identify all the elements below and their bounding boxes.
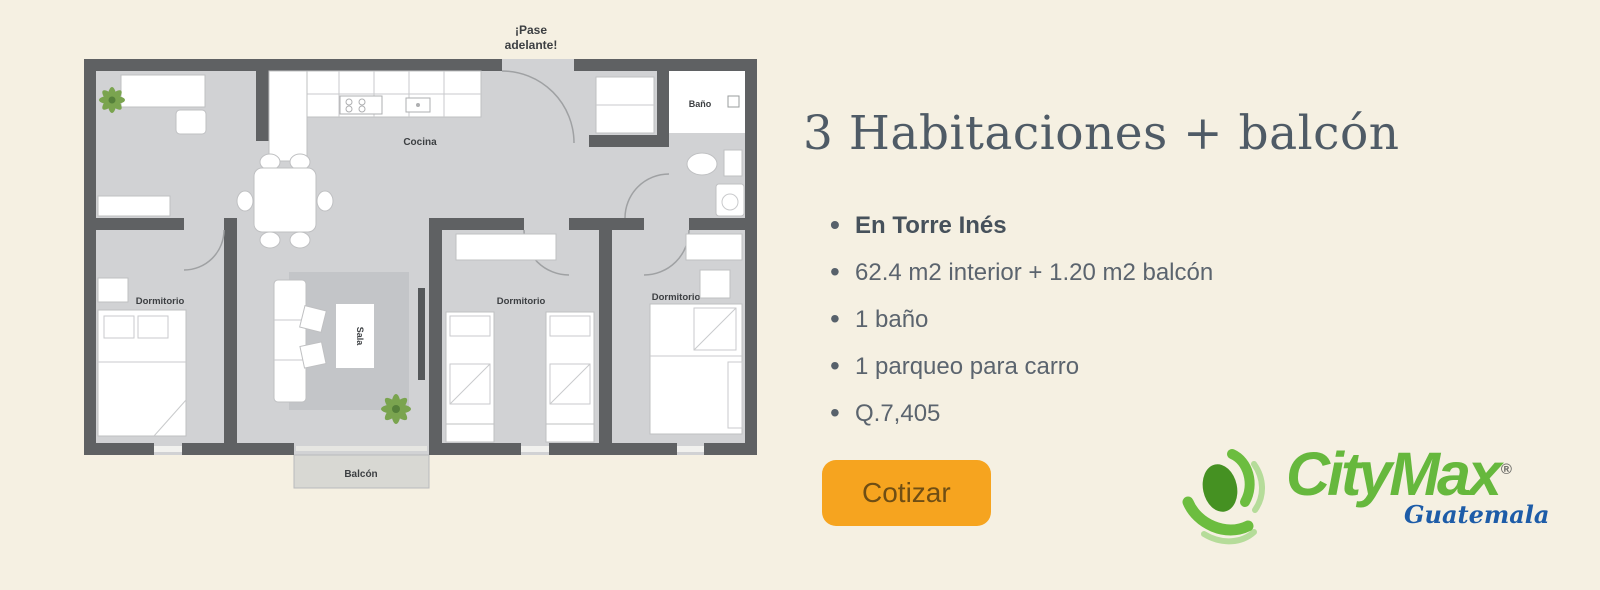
- cotizar-button[interactable]: Cotizar: [822, 460, 991, 526]
- entry-note-line1: ¡Pase: [515, 23, 547, 37]
- citymax-logo-icon: [1180, 444, 1280, 552]
- feature-price: Q.7,405: [828, 400, 1213, 428]
- bath-sink: [687, 153, 717, 175]
- kitchen-label: Cocina: [403, 137, 437, 148]
- entry-note-line2: adelante!: [505, 38, 558, 52]
- floor-plan: ¡Pase adelante! Balcón: [84, 12, 760, 494]
- brand-subtitle: Guatemala: [1404, 503, 1549, 527]
- entry-closet: [596, 77, 654, 133]
- feature-bathrooms: 1 baño: [828, 306, 1213, 334]
- plant-icon-living: [381, 394, 411, 424]
- brand-name: CityMax®: [1286, 444, 1549, 505]
- plant-icon-study: [99, 87, 125, 113]
- balcony: Balcón: [294, 455, 429, 488]
- bedroom2-label: Dormitorio: [497, 296, 546, 307]
- page-title: 3 Habitaciones + balcón: [803, 106, 1523, 161]
- feature-area: 62.4 m2 interior + 1.20 m2 balcón: [828, 259, 1213, 287]
- bedroom1: Dormitorio: [98, 278, 186, 436]
- living-label: Sala: [355, 327, 365, 347]
- bedroom3-label: Dormitorio: [652, 292, 701, 303]
- bedroom1-label: Dormitorio: [136, 296, 185, 307]
- listing-card: ¡Pase adelante! Balcón: [0, 0, 1600, 590]
- bathroom-label: Baño: [689, 99, 712, 109]
- registered-mark-icon: ®: [1501, 461, 1512, 478]
- balcony-label: Balcón: [344, 469, 377, 480]
- toilet: [716, 184, 744, 216]
- feature-parking: 1 parqueo para carro: [828, 353, 1213, 381]
- feature-tower: En Torre Inés: [828, 212, 1213, 240]
- brand-logo: CityMax® Guatemala: [1180, 444, 1549, 552]
- feature-list: En Torre Inés 62.4 m2 interior + 1.20 m2…: [828, 212, 1213, 447]
- tv: [418, 288, 425, 380]
